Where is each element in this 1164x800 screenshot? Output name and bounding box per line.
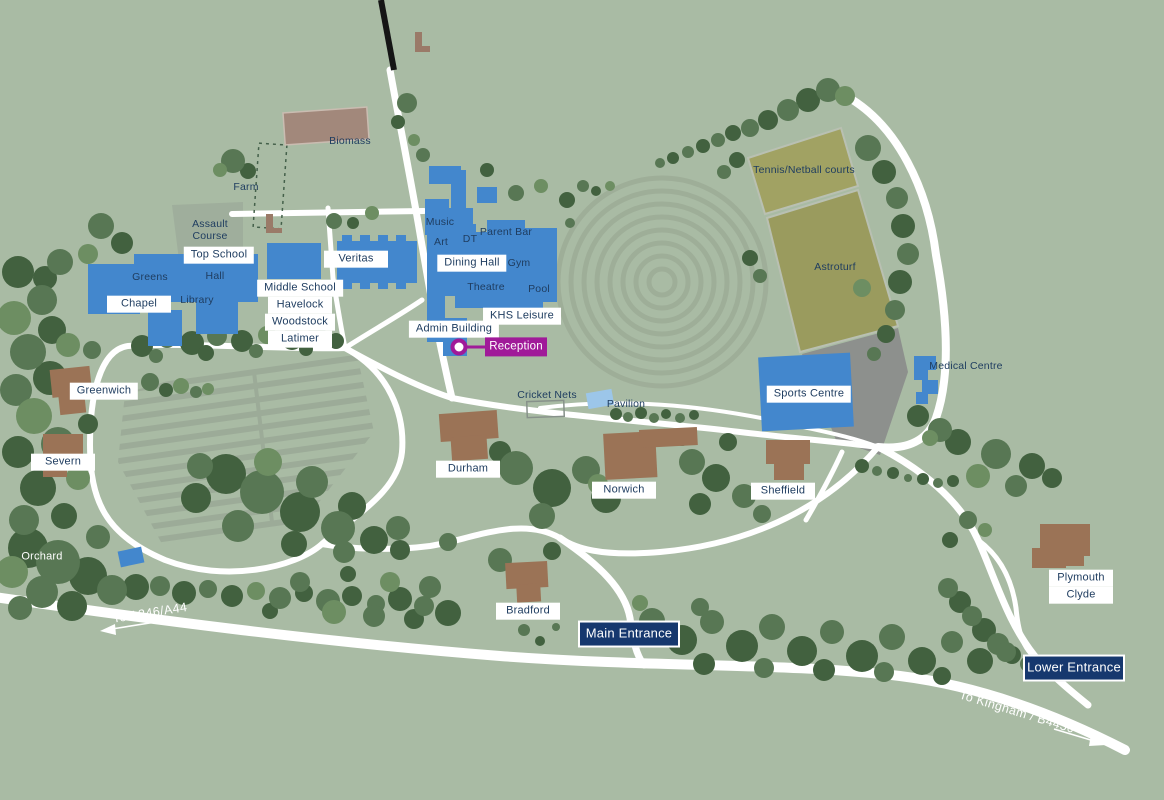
label-music: Music [426,216,454,228]
label-latimer: Latimer [268,331,332,348]
building-orchard-shed [118,547,145,568]
label-biomass: Biomass [329,135,371,147]
building-middle-school [267,243,321,279]
label-norwich: Norwich [592,482,656,499]
building-plymouth-clyde [1032,524,1090,568]
label-chapel: Chapel [107,296,171,313]
label-severn: Severn [31,454,95,471]
label-clyde: Clyde [1049,587,1113,604]
label-art: Art [434,236,448,248]
label-cricket-nets: Cricket Nets [517,389,577,401]
map-graphics [0,0,1164,800]
building-bradford [505,561,549,603]
label-greens: Greens [132,271,168,283]
building-sheffield [766,440,810,480]
label-gym: Gym [508,257,531,269]
label-durham: Durham [436,461,500,478]
label-hall: Hall [206,270,225,282]
label-reception: Reception [485,337,547,356]
label-bradford: Bradford [496,603,560,620]
label-theatre: Theatre [467,281,505,293]
label-pavilion: Pavilion [607,398,645,410]
label-parent-bar: Parent Bar [480,226,532,238]
label-woodstock: Woodstock [265,314,335,331]
label-middle-school: Middle School [257,280,343,297]
label-tennis-netball: Tennis/Netball courts [753,164,855,176]
label-lower-entrance: Lower Entrance [1023,655,1125,682]
campus-map: Top School Veritas Middle School Haveloc… [0,0,1164,800]
label-sheffield: Sheffield [751,483,815,500]
label-orchard: Orchard [21,551,62,564]
label-assault-course: Assault Course [183,218,237,242]
label-greenwich: Greenwich [70,383,138,400]
label-dt: DT [463,233,477,245]
label-dining-hall: Dining Hall [437,255,506,272]
building-farm-shed-bottom [266,214,282,233]
label-havelock: Havelock [268,297,332,314]
label-veritas: Veritas [324,251,388,268]
label-main-entrance: Main Entrance [578,621,680,648]
label-plymouth: Plymouth [1049,570,1113,587]
label-pool: Pool [528,283,550,295]
label-admin-building: Admin Building [409,321,499,338]
building-farm-shed-top [415,32,430,52]
railway-line [381,0,394,70]
label-sports-centre: Sports Centre [767,386,851,403]
label-library: Library [180,294,214,306]
label-medical-centre: Medical Centre [929,360,1002,372]
label-farm: Farm [233,181,258,193]
label-astroturf: Astroturf [814,261,855,273]
rings-lawn [558,178,766,386]
label-top-school: Top School [184,247,254,264]
